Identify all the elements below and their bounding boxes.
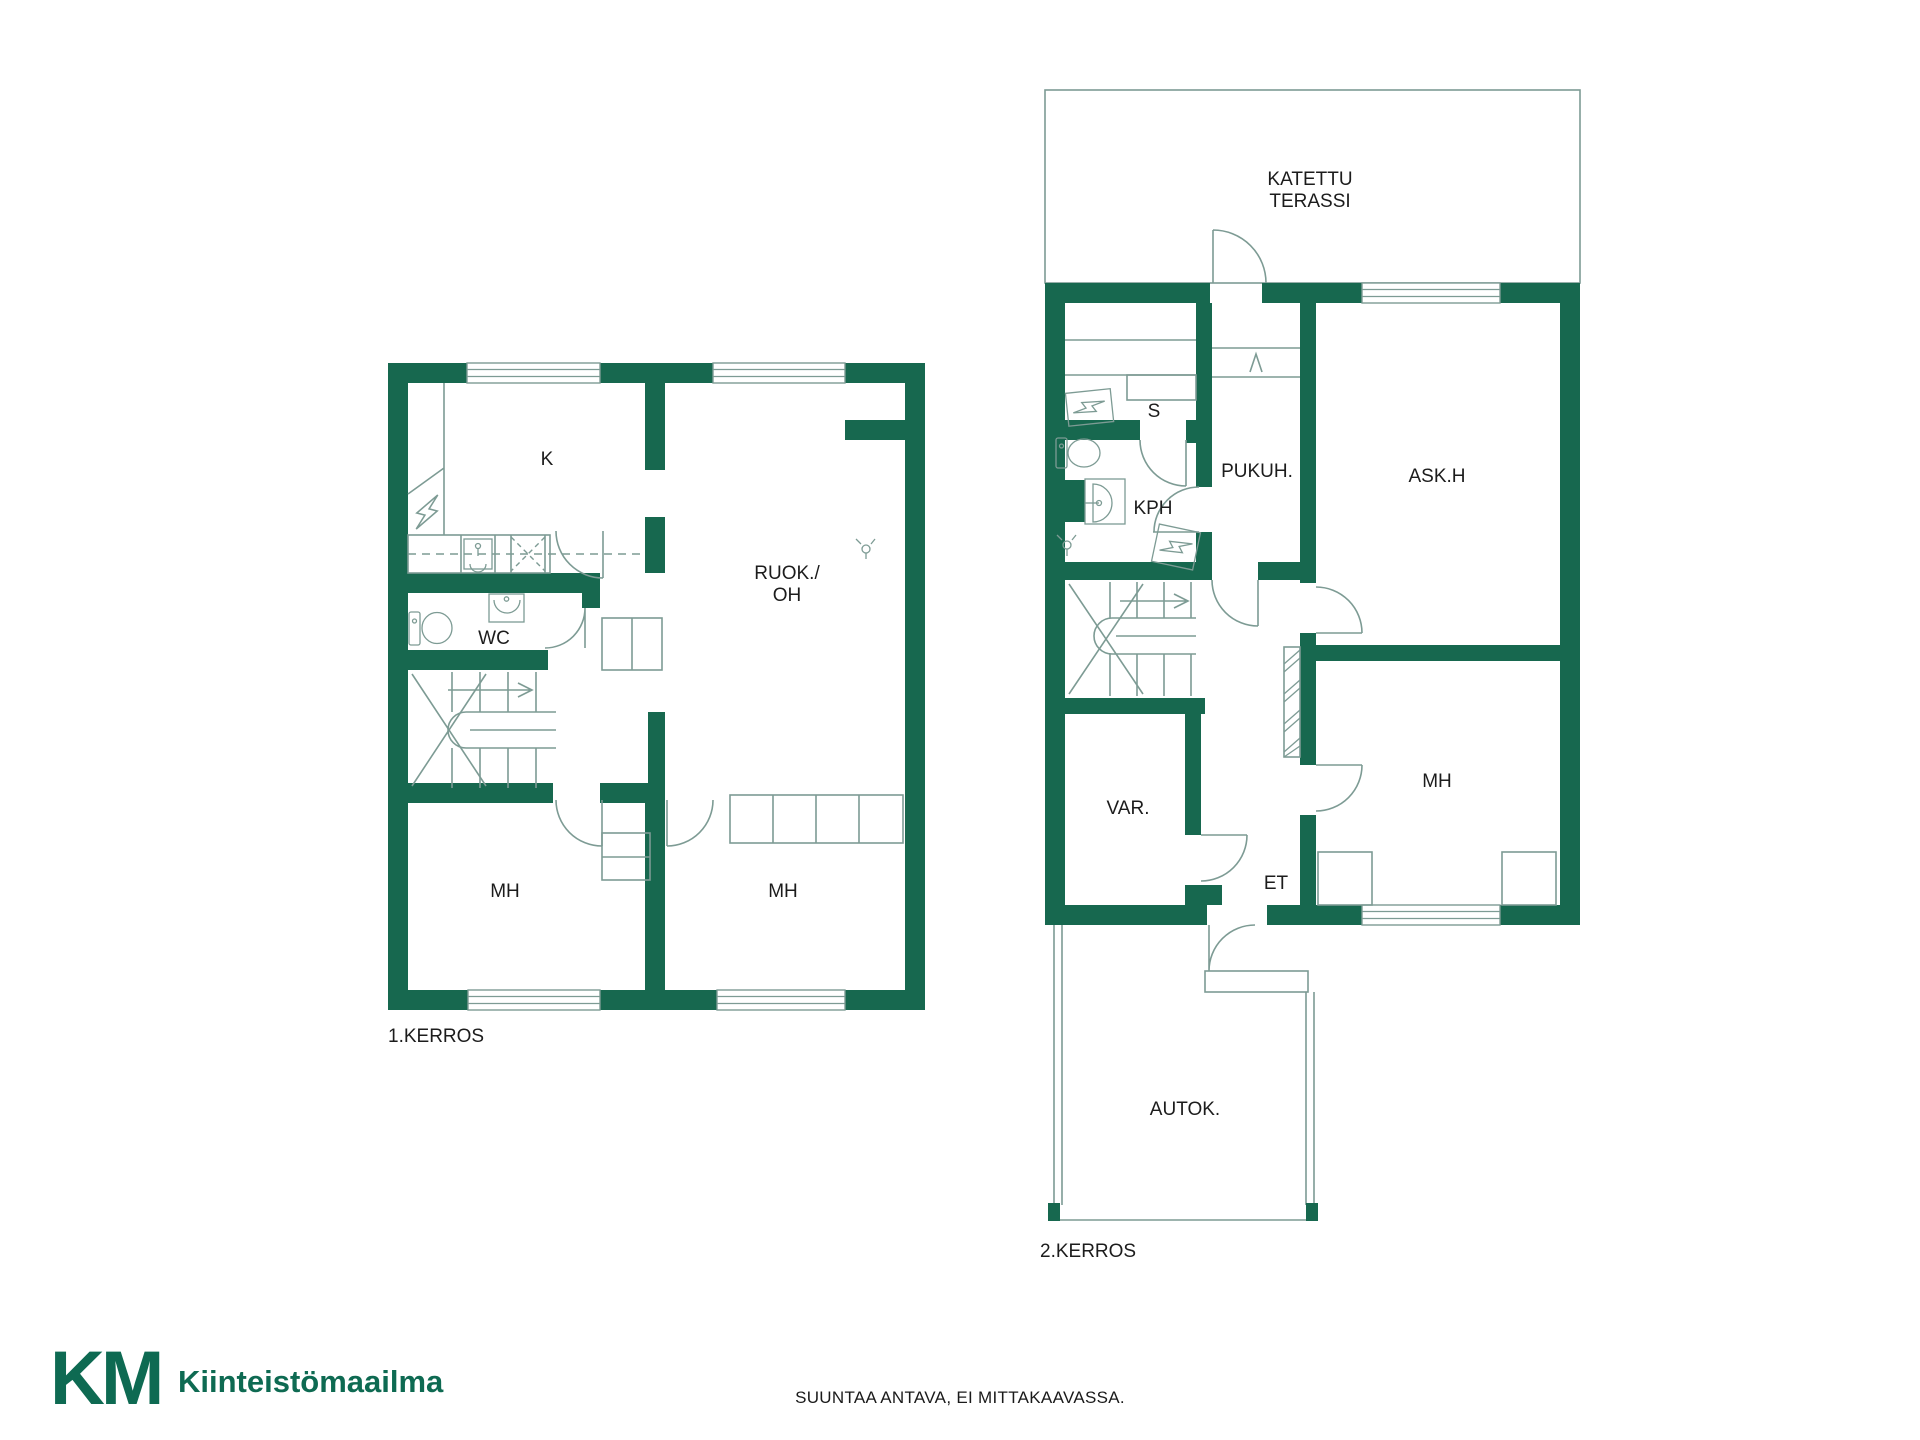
room-label-entry: ET — [1264, 873, 1289, 894]
garage-outline — [1048, 925, 1318, 1221]
floor1-kitchen-counter — [408, 383, 640, 573]
water-heater-icon — [1053, 480, 1085, 522]
floorplan-page: K RUOK./ OH WC MH MH 1.KERROS — [0, 0, 1920, 1440]
room-label-sauna: S — [1148, 401, 1161, 422]
upper-landing-marks — [1212, 348, 1300, 377]
water-tap-icon — [856, 539, 875, 559]
room-label-storage: VAR. — [1107, 798, 1150, 819]
bedroom-left-door-icon — [556, 800, 602, 846]
bathroom-sink-icon — [1085, 479, 1125, 524]
km-logo: K M Kiinteistömaailma — [50, 1336, 444, 1421]
window-icon — [713, 363, 845, 383]
window-icon — [467, 363, 600, 383]
floorplan-canvas: K RUOK./ OH WC MH MH 1.KERROS — [0, 0, 1920, 1440]
window-icon — [468, 990, 600, 1010]
terrace-label-1: KATETTU — [1267, 169, 1352, 190]
floor2-plan: KATETTU TERASSI S KPH PUKUH. ASK.H VAR. … — [1040, 90, 1580, 1262]
up-arrow-icon — [1250, 354, 1262, 372]
floor2-stairs-icon — [1069, 582, 1196, 696]
bedroom-door-icon — [1316, 765, 1362, 811]
room-label-hobby-room: ASK.H — [1408, 466, 1465, 487]
sauna-door-icon — [1140, 440, 1186, 486]
floor1-plan: K RUOK./ OH WC MH MH 1.KERROS — [388, 363, 925, 1047]
garage-post-icon — [1048, 1203, 1060, 1221]
hatched-closet-icon — [1284, 647, 1300, 757]
kitchen-sink-icon — [464, 539, 492, 572]
closet-icon — [602, 833, 650, 880]
floor1-stairs-icon — [412, 672, 556, 788]
floor2-title: 2.KERROS — [1040, 1241, 1136, 1262]
logo-k-icon: K — [50, 1336, 105, 1421]
wc-door-icon — [545, 608, 585, 648]
floor1-interior-walls — [388, 383, 905, 990]
toilet-icon — [409, 612, 452, 645]
logo-m-icon: M — [101, 1336, 164, 1421]
garage-post-icon — [1306, 1203, 1318, 1221]
sauna-benches — [1065, 340, 1196, 426]
stove-lightning-icon — [413, 491, 441, 533]
room-label-garage: AUTOK. — [1150, 1099, 1220, 1120]
terrace-door-icon — [1213, 230, 1266, 283]
stairs-up-arrow-icon — [448, 683, 532, 697]
room-label-dining-living-1: RUOK./ — [754, 563, 820, 584]
room-label-wc: WC — [478, 628, 510, 649]
floor1-title: 1.KERROS — [388, 1026, 484, 1047]
closet-icon — [602, 618, 662, 670]
room-label-bedroom-right: MH — [768, 881, 798, 902]
floor2-windows — [1362, 283, 1500, 925]
wc-sink-icon — [489, 594, 524, 622]
window-icon — [717, 990, 845, 1010]
disclaimer-text: SUUNTAA ANTAVA, EI MITTAKAAVASSA. — [0, 1388, 1920, 1408]
room-label-bedroom: MH — [1422, 771, 1452, 792]
bedroom-right-door-icon — [667, 800, 713, 846]
room-label-bedroom-left: MH — [490, 881, 520, 902]
floor2-closets — [1318, 852, 1556, 905]
room-label-kitchen: K — [541, 449, 554, 470]
terrace-label-2: TERASSI — [1269, 191, 1350, 212]
storage-door-icon — [1201, 835, 1247, 881]
room-label-dining-living-2: OH — [773, 585, 802, 606]
closet-icon — [1502, 852, 1556, 905]
room-label-dressing-room: PUKUH. — [1221, 461, 1293, 482]
window-icon — [1362, 283, 1500, 303]
entry-exterior-door-icon — [1209, 925, 1255, 971]
room-label-bathroom: KPH — [1133, 498, 1172, 519]
closet-icon — [1318, 852, 1372, 905]
window-icon — [1362, 905, 1500, 925]
stairs-up-arrow-icon — [1120, 594, 1188, 608]
dressing-room-door-icon — [1212, 580, 1258, 626]
hobby-room-door-icon — [1316, 587, 1362, 633]
closet-icon — [730, 795, 903, 843]
entry-step — [1205, 971, 1308, 992]
